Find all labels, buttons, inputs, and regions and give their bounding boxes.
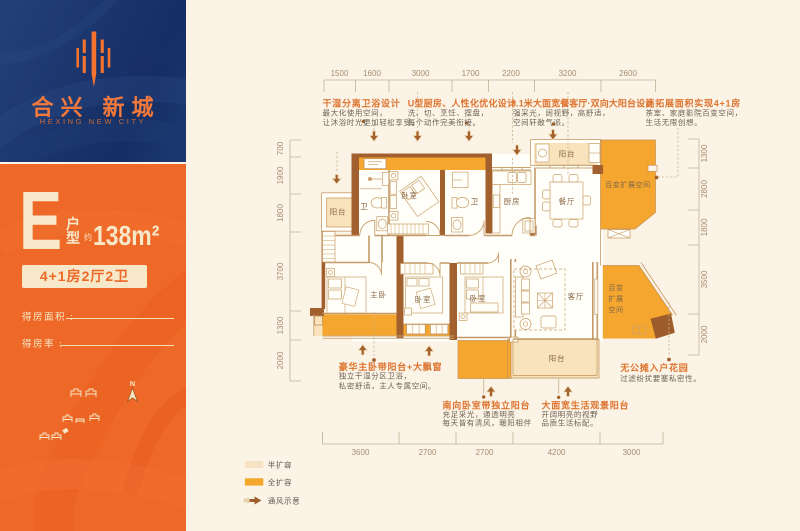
- svg-text:独立干湿分区卫浴，: 独立干湿分区卫浴，: [339, 371, 412, 381]
- svg-text:空间: 空间: [608, 305, 623, 314]
- svg-text:全扩容: 全扩容: [268, 477, 292, 487]
- svg-text:豪华主卧带阳台+大飘窗: 豪华主卧带阳台+大飘窗: [339, 361, 443, 372]
- svg-text:餐厅: 餐厅: [559, 197, 576, 206]
- svg-text:3500: 3500: [700, 270, 709, 288]
- svg-text:2200: 2200: [502, 69, 520, 78]
- svg-text:1800: 1800: [276, 204, 285, 222]
- svg-text:3000: 3000: [623, 448, 641, 457]
- svg-text:最大化使用空间，: 最大化使用空间，: [323, 108, 388, 118]
- svg-text:1900: 1900: [276, 166, 285, 184]
- svg-text:阳台: 阳台: [330, 207, 347, 217]
- svg-text:客厅: 客厅: [568, 291, 585, 301]
- svg-text:1600: 1600: [363, 69, 381, 78]
- svg-text:2700: 2700: [419, 448, 437, 457]
- svg-text:2800: 2800: [700, 180, 709, 198]
- svg-text:私密舒适，主人专属空间。: 私密舒适，主人专属空间。: [339, 381, 436, 391]
- svg-text:U型厨房、人性化优化设计: U型厨房、人性化优化设计: [408, 98, 517, 109]
- svg-text:卧室: 卧室: [470, 293, 487, 303]
- svg-text:2600: 2600: [619, 69, 637, 78]
- svg-text:阳台: 阳台: [549, 353, 566, 363]
- svg-text:干湿分离卫浴设计: 干湿分离卫浴设计: [323, 98, 401, 109]
- svg-text:充足采光，通透明亮: 充足采光，通透明亮: [443, 409, 516, 419]
- svg-text:半扩容: 半扩容: [268, 459, 292, 469]
- svg-text:南向卧室带独立阳台: 南向卧室带独立阳台: [443, 400, 531, 411]
- svg-text:4200: 4200: [548, 448, 566, 457]
- svg-text:卫: 卫: [360, 202, 368, 211]
- svg-text:1500: 1500: [331, 69, 349, 78]
- svg-text:700: 700: [276, 141, 285, 155]
- svg-text:扩展: 扩展: [608, 294, 623, 303]
- svg-text:3200: 3200: [559, 69, 577, 78]
- svg-text:2000: 2000: [700, 325, 709, 343]
- svg-text:卫: 卫: [471, 197, 479, 206]
- svg-text:3600: 3600: [352, 448, 370, 457]
- svg-text:1300: 1300: [276, 316, 285, 334]
- svg-text:每天皆有清风，暖阳相伴: 每天皆有清风，暖阳相伴: [443, 418, 532, 428]
- svg-text:2000: 2000: [276, 351, 285, 369]
- svg-text:1800: 1800: [700, 218, 709, 236]
- svg-text:让沐浴时光更加轻松享受。: 让沐浴时光更加轻松享受。: [323, 117, 420, 127]
- svg-text:厨房: 厨房: [504, 196, 521, 206]
- svg-text:空间轩敞气派。: 空间轩敞气派。: [513, 117, 570, 127]
- svg-text:卧室: 卧室: [415, 294, 432, 304]
- svg-text:百变: 百变: [608, 283, 623, 292]
- svg-text:1700: 1700: [462, 69, 480, 78]
- svg-text:洗、切、烹饪、摆盘，: 洗、切、烹饪、摆盘，: [408, 108, 489, 118]
- svg-text:开阔明亮的视野: 开阔明亮的视野: [542, 409, 599, 419]
- svg-text:3700: 3700: [276, 262, 285, 280]
- svg-text:茶室、家庭影院百变空间，: 茶室、家庭影院百变空间，: [646, 108, 743, 118]
- svg-text:百变扩展空间: 百变扩展空间: [605, 180, 651, 189]
- svg-text:8.1米大面宽餐客厅·双向大阳台设计: 8.1米大面宽餐客厅·双向大阳台设计: [511, 98, 654, 109]
- svg-text:生活无限创想。: 生活无限创想。: [646, 117, 703, 127]
- svg-text:强采光，阔视野，高舒适，: 强采光，阔视野，高舒适，: [513, 108, 610, 118]
- svg-text:1300: 1300: [700, 144, 709, 162]
- svg-text:每个动作完美衔接。: 每个动作完美衔接。: [408, 117, 481, 127]
- svg-text:过滤纷扰要塞私密性。: 过滤纷扰要塞私密性。: [620, 373, 701, 383]
- svg-text:2700: 2700: [476, 448, 494, 457]
- svg-text:品质生活标配。: 品质生活标配。: [542, 418, 599, 428]
- svg-text:大面宽生活观景阳台: 大面宽生活观景阳台: [542, 400, 630, 411]
- svg-text:主卧: 主卧: [370, 290, 387, 300]
- svg-text:高拓展面积实现4+1房: 高拓展面积实现4+1房: [646, 98, 742, 109]
- svg-text:通风示意: 通风示意: [268, 495, 300, 505]
- svg-text:3000: 3000: [412, 69, 430, 78]
- svg-text:卧室: 卧室: [401, 190, 418, 200]
- svg-text:无公摊入户花园: 无公摊入户花园: [619, 362, 688, 373]
- svg-text:阳台: 阳台: [559, 149, 576, 159]
